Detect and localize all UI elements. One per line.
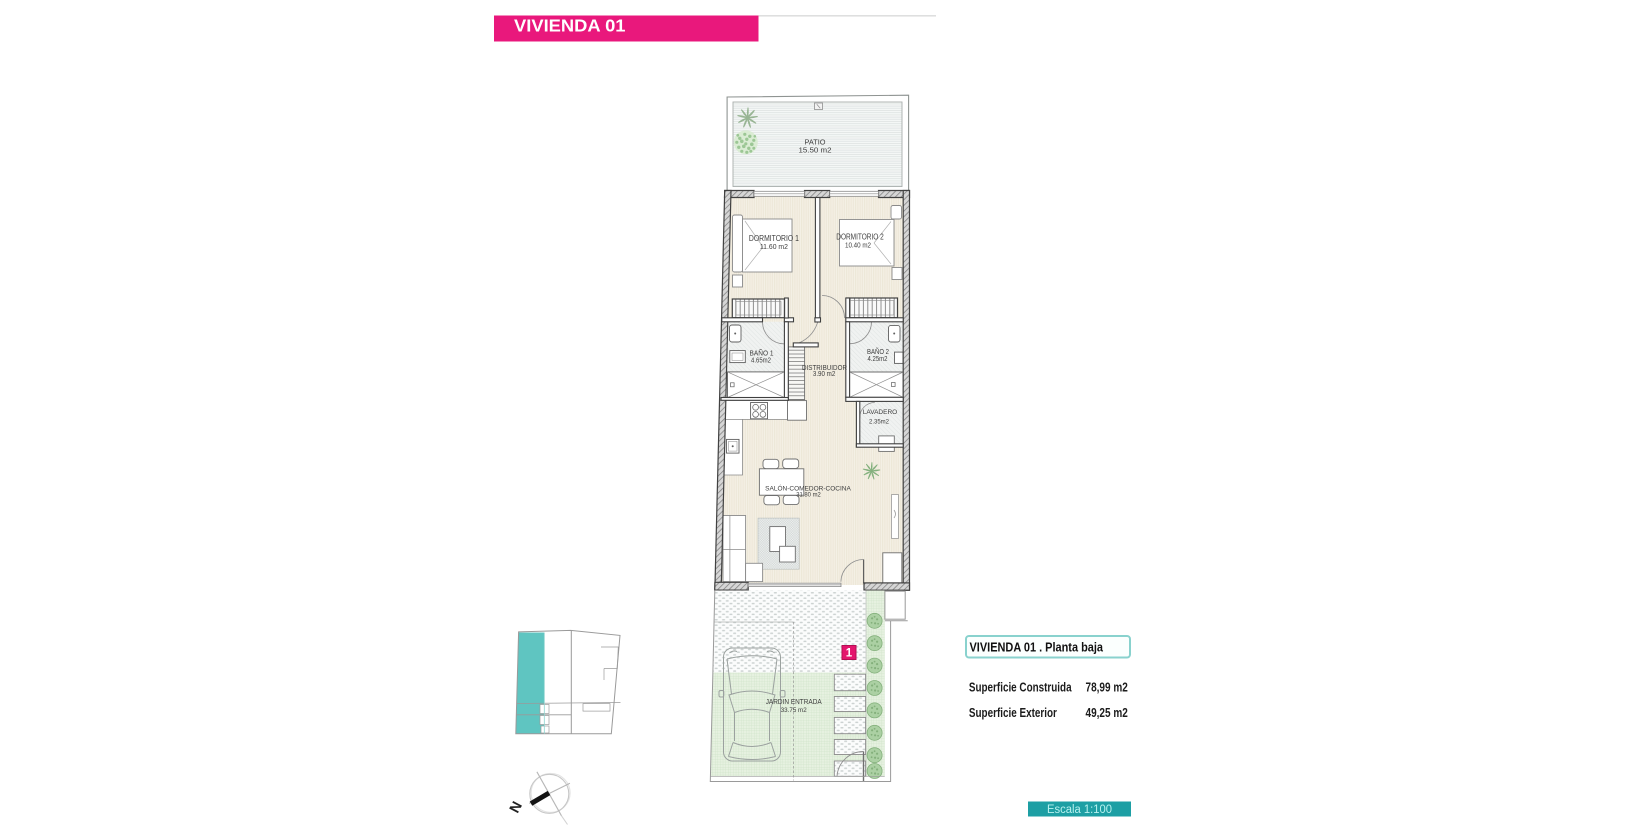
svg-text:15.50 m2: 15.50 m2 — [799, 148, 832, 155]
svg-text:VIVIENDA 01 . Planta baja: VIVIENDA 01 . Planta baja — [970, 639, 1104, 654]
svg-text:BAÑO 2: BAÑO 2 — [867, 347, 889, 356]
svg-text:11.60 m2: 11.60 m2 — [760, 242, 788, 251]
svg-text:31.80 m2: 31.80 m2 — [796, 492, 821, 499]
svg-text:3.90 m2: 3.90 m2 — [813, 371, 835, 378]
svg-text:10.40 m2: 10.40 m2 — [845, 241, 871, 250]
svg-text:N: N — [507, 799, 526, 816]
svg-text:4.25m2: 4.25m2 — [868, 356, 888, 363]
svg-text:4.65m2: 4.65m2 — [751, 358, 771, 365]
svg-text:VIVIENDA 01: VIVIENDA 01 — [514, 16, 626, 36]
svg-text:PATIO: PATIO — [805, 140, 827, 147]
svg-text:Superficie Construida: Superficie Construida — [969, 680, 1072, 695]
svg-text:JARDIN ENTRADA: JARDIN ENTRADA — [766, 697, 823, 706]
svg-text:BAÑO 1: BAÑO 1 — [750, 349, 774, 358]
svg-text:1: 1 — [846, 647, 853, 659]
svg-text:33.75 m2: 33.75 m2 — [781, 707, 807, 714]
svg-text:LAVADERO: LAVADERO — [863, 409, 898, 416]
svg-text:Superficie Exterior: Superficie Exterior — [969, 705, 1057, 720]
svg-text:49,25 m2: 49,25 m2 — [1086, 705, 1128, 720]
svg-text:Escala 1:100: Escala 1:100 — [1047, 804, 1112, 816]
svg-text:78,99 m2: 78,99 m2 — [1086, 680, 1128, 695]
svg-text:2.35m2: 2.35m2 — [869, 419, 889, 426]
